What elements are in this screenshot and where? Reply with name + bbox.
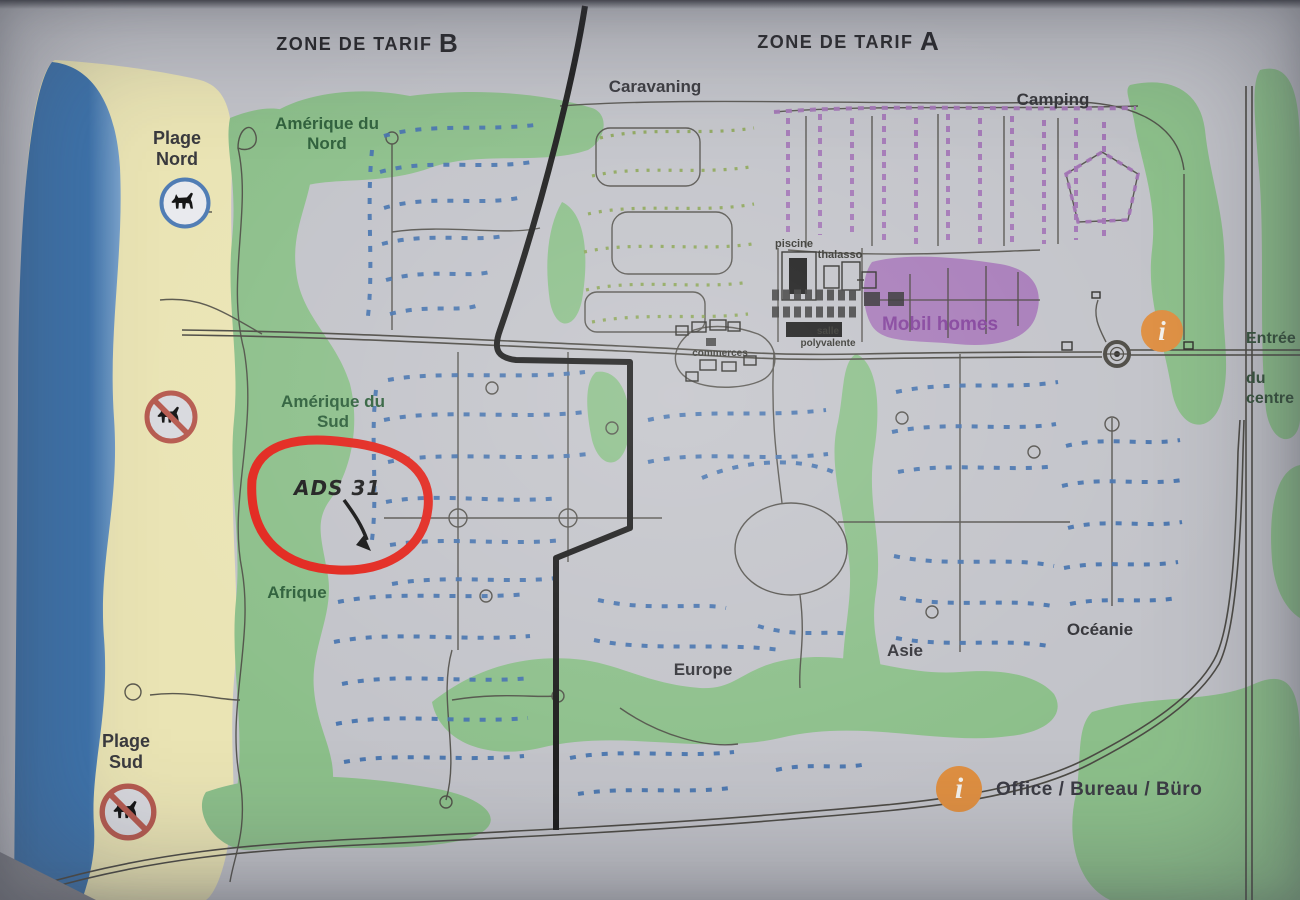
label-plage-nord: Plage Nord: [137, 128, 217, 170]
annotation-arrow: [344, 500, 371, 551]
info-icon-legend: i: [936, 766, 982, 812]
no-dogs-glyph: [99, 783, 157, 841]
dog-icon: [159, 177, 211, 229]
caravaning-dots: [584, 128, 756, 322]
entree-line1: Entrée: [1246, 329, 1300, 349]
label-entree-du-centre: Entrée du centre: [1246, 309, 1300, 429]
label-camping: Camping: [1017, 90, 1090, 110]
zone-b-title: ZONE DE TARIF B: [276, 28, 457, 59]
zone-a-title: ZONE DE TARIF A: [757, 26, 938, 57]
legend-office-label: Office / Bureau / Büro: [996, 779, 1202, 801]
label-oceanie: Océanie: [1067, 620, 1133, 640]
label-europe: Europe: [674, 660, 733, 680]
info-icon: i: [1141, 310, 1183, 352]
no-dogs-icon: [144, 390, 198, 444]
label-thalasso: thalasso: [818, 249, 863, 262]
label-amerique-du-nord: Amérique du Nord: [275, 114, 379, 154]
label-amerique-du-sud: Amérique du Sud: [281, 392, 385, 432]
handwritten-note: ADS 31: [294, 477, 381, 501]
camping-purple-dashes: [774, 108, 1138, 246]
label-mobil-homes: Mobil homes: [882, 314, 998, 336]
no-dogs-icon-south: [99, 783, 157, 841]
label-afrique: Afrique: [267, 583, 327, 603]
entrance-roundabout: [1103, 342, 1131, 366]
label-salle-polyvalente: salle polyvalente: [792, 326, 864, 350]
map-photo: ZONE DE TARIF B ZONE DE TARIF A Caravani…: [0, 0, 1300, 900]
entree-line2: du centre: [1246, 369, 1300, 409]
no-dogs-glyph: [144, 390, 198, 444]
label-commerces: commerces: [692, 348, 748, 360]
label-plage-sud: Plage Sud: [91, 731, 161, 773]
label-caravaning: Caravaning: [609, 77, 702, 97]
dogs-allowed-icon: [159, 177, 211, 229]
label-asie: Asie: [887, 641, 923, 661]
label-piscine: piscine: [775, 238, 813, 251]
